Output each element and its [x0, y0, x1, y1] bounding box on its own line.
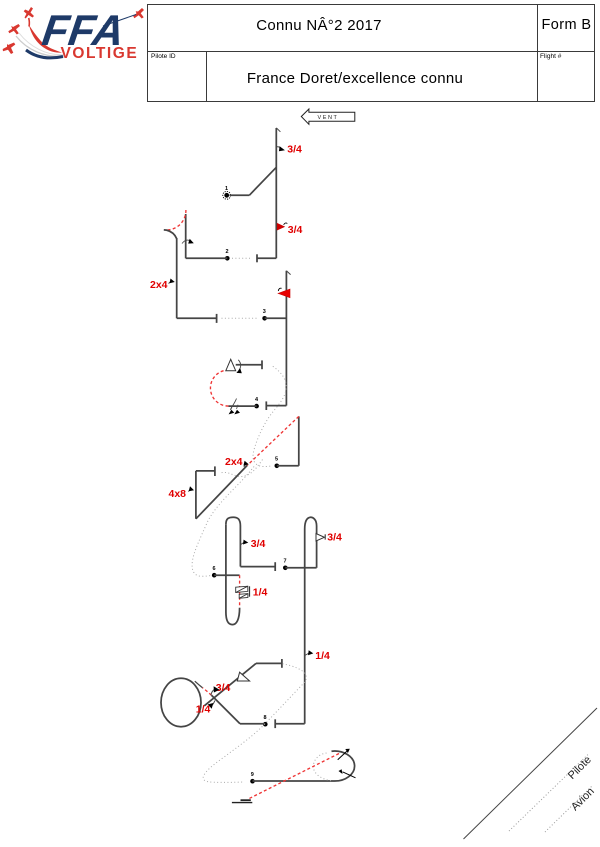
- svg-text:3/4: 3/4: [327, 531, 342, 543]
- svg-text:3/4: 3/4: [288, 224, 303, 236]
- svg-text:VENT: VENT: [317, 115, 338, 121]
- svg-text:1/4: 1/4: [196, 704, 211, 716]
- svg-text:Pilote: Pilote: [566, 754, 594, 782]
- svg-text:2x4: 2x4: [150, 279, 168, 291]
- svg-text:8: 8: [264, 715, 267, 721]
- svg-text:1: 1: [225, 186, 228, 192]
- svg-text:9: 9: [251, 772, 254, 778]
- svg-text:4: 4: [255, 397, 259, 403]
- svg-text:7: 7: [284, 559, 287, 565]
- svg-text:6: 6: [213, 566, 216, 572]
- svg-text:2x4: 2x4: [225, 456, 243, 468]
- svg-text:3/4: 3/4: [287, 144, 302, 156]
- svg-text:2: 2: [226, 249, 229, 255]
- svg-text:1/4: 1/4: [315, 650, 330, 662]
- svg-text:4x8: 4x8: [169, 488, 187, 500]
- svg-text:3: 3: [263, 309, 266, 315]
- svg-text:5: 5: [275, 457, 278, 463]
- svg-text:Avion: Avion: [569, 785, 597, 813]
- svg-text:1/4: 1/4: [253, 587, 268, 599]
- svg-text:3/4: 3/4: [251, 538, 266, 550]
- svg-text:3/4: 3/4: [216, 682, 231, 694]
